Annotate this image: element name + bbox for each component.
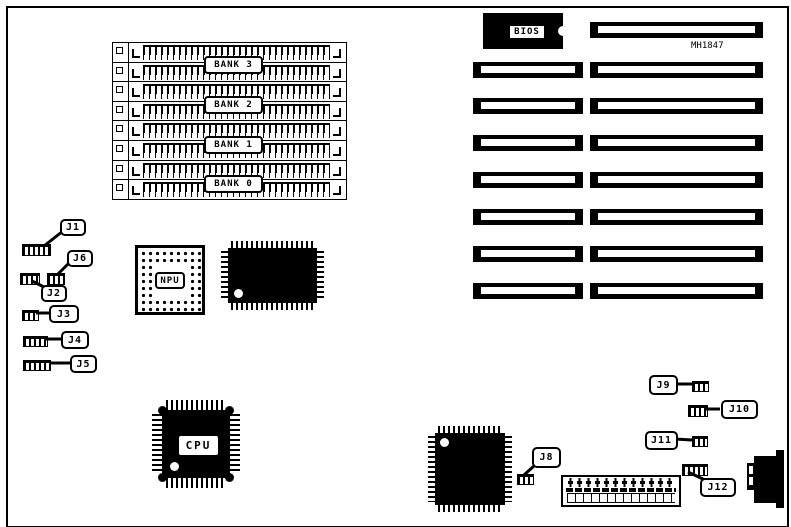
pin-square-row — [567, 493, 675, 503]
latch-hook-icon — [132, 49, 140, 58]
expansion-slot — [590, 98, 763, 114]
latch-hook-icon — [132, 167, 140, 176]
latch-hook-icon — [132, 108, 140, 117]
slot-keyway — [598, 139, 755, 146]
jumper-label-j2: J2 — [41, 285, 67, 302]
latch-icon — [116, 125, 123, 132]
slot-keyway — [598, 250, 755, 257]
power-connector — [561, 475, 681, 507]
pin-plus-row — [566, 478, 676, 487]
pin-ticks — [143, 114, 330, 119]
divider — [128, 63, 129, 82]
cpu-label: CPU — [177, 434, 220, 457]
latch-hook-icon — [333, 108, 341, 117]
pin-row — [438, 505, 502, 512]
latch-hook-icon — [132, 127, 140, 136]
pin-row — [230, 414, 240, 474]
jumper-j3 — [22, 310, 39, 321]
jumper-j8 — [517, 474, 534, 485]
pin-row — [166, 400, 226, 410]
jumper-label-j9: J9 — [649, 375, 678, 395]
connector-hole-icon — [749, 477, 753, 485]
divider — [128, 43, 129, 62]
expansion-slot — [590, 246, 763, 262]
slot-keyway — [481, 213, 575, 220]
npu-socket: NPU — [135, 245, 205, 315]
jumper-j9 — [692, 381, 709, 392]
slot-keyway — [481, 250, 575, 257]
jumper-label-j3: J3 — [49, 305, 79, 323]
jumper-j2 — [20, 273, 40, 285]
pin-row — [166, 478, 226, 488]
jumper-j12 — [682, 464, 708, 476]
bios-chip: BIOS — [483, 13, 563, 49]
jumper-label-j1: J1 — [60, 219, 86, 236]
latch-hook-icon — [333, 49, 341, 58]
contact-strip — [143, 123, 330, 133]
jumper-j1 — [22, 244, 51, 256]
expansion-slot — [590, 62, 763, 78]
divider — [128, 161, 129, 180]
contact-strip — [143, 45, 330, 55]
pin-ticks — [143, 75, 330, 80]
slot-keyway — [481, 176, 575, 183]
latch-icon — [116, 47, 123, 54]
latch-hook-icon — [333, 69, 341, 78]
slot-keyway — [481, 102, 575, 109]
jumper-label-j10: J10 — [721, 400, 758, 419]
jumper-label-j5: J5 — [70, 355, 97, 373]
slot-keyway — [598, 102, 755, 109]
pin1-dot-icon — [234, 289, 243, 298]
latch-icon — [116, 106, 123, 113]
npu-label: NPU — [155, 272, 185, 289]
slot-keyway — [481, 287, 575, 294]
chip-notch-icon — [558, 26, 564, 36]
bank-label: BANK 0 — [204, 175, 263, 193]
divider — [128, 121, 129, 140]
jumper-j10 — [688, 405, 708, 417]
contact-strip — [143, 84, 330, 94]
pin-row — [231, 241, 314, 248]
latch-hook-icon — [333, 167, 341, 176]
latch-hook-icon — [132, 186, 140, 195]
pin-row — [221, 251, 228, 300]
expansion-slot — [590, 283, 763, 299]
divider — [128, 102, 129, 121]
expansion-slot — [473, 98, 583, 114]
latch-hook-icon — [132, 69, 140, 78]
expansion-slot — [590, 172, 763, 188]
jumper-j6 — [47, 273, 65, 285]
latch-icon — [116, 86, 123, 93]
pin-row — [438, 426, 502, 433]
pin-row — [317, 251, 324, 300]
expansion-slot — [473, 172, 583, 188]
jumper-j5 — [23, 360, 51, 371]
connector-body — [754, 456, 778, 503]
latch-hook-icon — [333, 88, 341, 97]
latch-hook-icon — [333, 186, 341, 195]
slot-keyway — [481, 139, 575, 146]
latch-icon — [116, 165, 123, 172]
jumper-label-j4: J4 — [61, 331, 89, 349]
latch-hook-icon — [132, 147, 140, 156]
jumper-label-j6: J6 — [67, 250, 93, 267]
slot-keyway — [598, 213, 755, 220]
pin1-dot-icon — [170, 462, 179, 471]
jumper-label-j11: J11 — [645, 431, 678, 450]
bank-label: BANK 1 — [204, 136, 263, 154]
latch-hook-icon — [333, 127, 341, 136]
latch-icon — [116, 184, 123, 191]
expansion-slot — [590, 22, 763, 38]
expansion-slot — [473, 246, 583, 262]
qfp-chip — [221, 241, 324, 310]
pin1-dot-icon — [440, 438, 449, 447]
jumper-label-j12: J12 — [700, 478, 736, 497]
pin-row — [231, 303, 314, 310]
expansion-slot — [590, 209, 763, 225]
contact-strip — [143, 163, 330, 173]
slot-keyway — [598, 26, 755, 33]
divider — [128, 82, 129, 101]
expansion-slot — [473, 209, 583, 225]
cpu-chip: CPU — [152, 400, 240, 488]
jumper-label-j8: J8 — [532, 447, 561, 468]
pin-row — [428, 436, 435, 502]
bank-label: BANK 2 — [204, 96, 263, 114]
latch-icon — [116, 67, 123, 74]
motherboard-diagram: BANK 3 BANK 2 BANK 1 BANK 0 BIOS MH1847 … — [0, 0, 791, 527]
slot-keyway — [598, 66, 755, 73]
bank-label: BANK 3 — [204, 56, 263, 74]
jumper-j4 — [23, 336, 48, 347]
expansion-slot — [473, 135, 583, 151]
connector-hole-icon — [749, 466, 753, 474]
pin-row — [152, 414, 162, 474]
bios-chip-label: BIOS — [509, 25, 545, 39]
latch-icon — [116, 145, 123, 152]
slot-keyway — [598, 287, 755, 294]
divider — [128, 180, 129, 199]
divider — [128, 141, 129, 160]
qfp-chip — [428, 426, 512, 512]
expansion-slot — [473, 283, 583, 299]
slot-keyway — [481, 66, 575, 73]
part-number: MH1847 — [691, 41, 724, 51]
jumper-j11 — [692, 436, 708, 447]
latch-hook-icon — [333, 147, 341, 156]
latch-hook-icon — [132, 88, 140, 97]
pin-row — [505, 436, 512, 502]
slot-keyway — [598, 176, 755, 183]
pin-dash-row — [566, 488, 676, 492]
expansion-slot — [473, 62, 583, 78]
expansion-slot — [590, 135, 763, 151]
